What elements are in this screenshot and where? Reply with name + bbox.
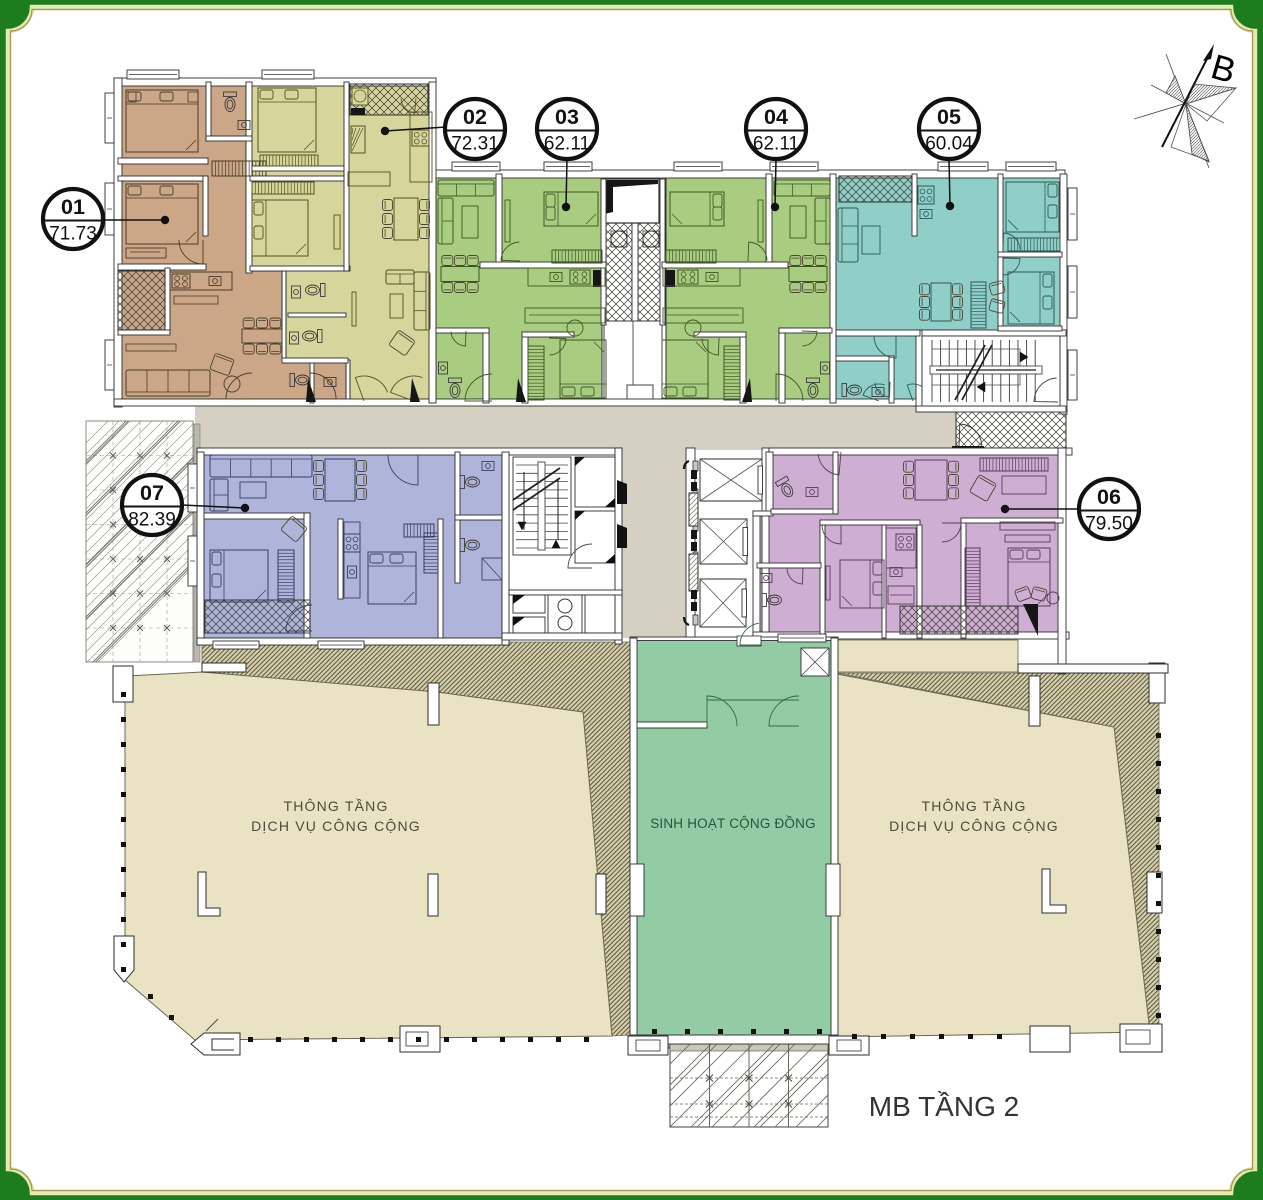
svg-text:MB TẦNG 2: MB TẦNG 2 [869,1091,1019,1122]
svg-text:72.31: 72.31 [451,134,499,155]
svg-text:SINH HOẠT CỘNG ĐỒNG: SINH HOẠT CỘNG ĐỒNG [650,816,816,831]
svg-text:DỊCH VỤ CÔNG CỘNG: DỊCH VỤ CÔNG CỘNG [889,818,1059,834]
svg-text:DỊCH VỤ CÔNG CỘNG: DỊCH VỤ CÔNG CỘNG [251,818,421,834]
svg-text:04: 04 [764,105,788,129]
svg-text:62.11: 62.11 [753,134,799,155]
svg-text:THÔNG TẦNG: THÔNG TẦNG [921,798,1026,814]
svg-text:60.04: 60.04 [925,134,973,155]
svg-text:71.73: 71.73 [49,224,97,245]
svg-text:07: 07 [140,481,164,505]
svg-text:01: 01 [61,195,85,219]
svg-text:06: 06 [1097,485,1121,509]
svg-text:62.11: 62.11 [544,134,590,155]
svg-text:82.39: 82.39 [128,510,176,531]
svg-text:05: 05 [937,105,961,129]
svg-text:02: 02 [463,105,487,129]
svg-text:03: 03 [555,105,579,129]
svg-text:THÔNG TẦNG: THÔNG TẦNG [283,798,388,814]
svg-text:79.50: 79.50 [1085,514,1133,535]
